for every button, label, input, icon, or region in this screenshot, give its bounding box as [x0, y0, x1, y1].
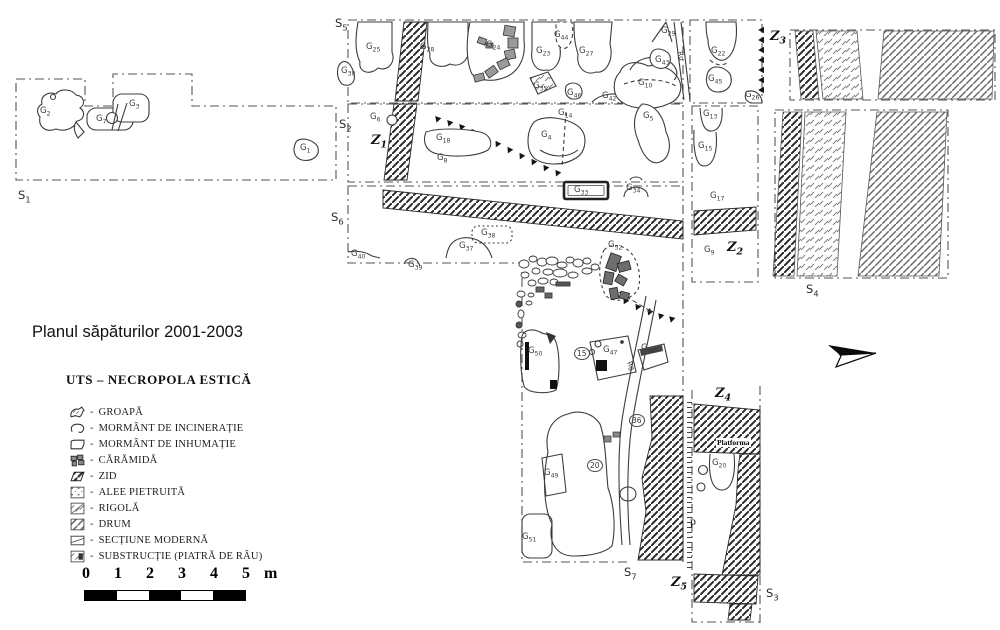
s3-bottom-tongue — [728, 604, 752, 620]
section-east-strip-outline — [692, 106, 758, 282]
legend-separator: - — [90, 551, 94, 562]
legend-separator: - — [90, 471, 94, 482]
caramida-icon — [70, 454, 85, 467]
wall-z1-upper — [395, 22, 427, 101]
legend-item-label: SUBSTRUCȚIE (PIATRĂ DE RÂU) — [99, 551, 263, 562]
graves-s2 — [387, 108, 722, 197]
substructie-band-s4 — [773, 112, 802, 276]
scale-segment — [213, 591, 245, 600]
drum-icon — [70, 518, 85, 531]
rigola-band-s4 — [797, 112, 846, 276]
legend-item-rigola: - RIGOLĂ — [70, 501, 356, 517]
incineratie-icon — [70, 422, 85, 435]
scale-segment — [149, 591, 181, 600]
scale-segment — [85, 591, 117, 600]
legend-item-label: DRUM — [99, 519, 131, 530]
s3-bottom-band — [694, 574, 758, 604]
groapa-icon — [70, 406, 85, 419]
legend-item-zid: - ZID — [70, 468, 356, 484]
sectiune-icon — [70, 534, 85, 547]
legend-item-label: MORMÂNT DE INHUMAȚIE — [99, 439, 236, 450]
legend-item-incineratie: - MORMÂNT DE INCINERAȚIE — [70, 420, 356, 436]
inhumatie-icon — [70, 438, 85, 451]
scale-segment — [117, 591, 149, 600]
legend-rows: - GROAPĂ - MORMÂNT DE INCINERAȚIE - MORM… — [70, 404, 356, 565]
rigola-band-north — [816, 31, 863, 99]
legend-item-alee: - ALEE PIETRUITĂ — [70, 484, 356, 500]
scale-tick-3: 3 — [166, 565, 198, 585]
scale-segment — [181, 591, 213, 600]
legend-separator: - — [90, 503, 94, 514]
legend-separator: - — [90, 487, 94, 498]
legend-item-sectiune: - SECȚIUNE MODERNĂ — [70, 533, 356, 549]
legend-item-groapa: - GROAPĂ — [70, 404, 356, 420]
paved-alley-stones — [516, 256, 599, 347]
legend-item-caramida: - CĂRĂMIDĂ — [70, 452, 356, 468]
legend-title: UTS – NECROPOLA ESTICĂ — [66, 372, 356, 388]
g52-bricks — [603, 253, 631, 300]
section-s6-s7-outline — [348, 186, 683, 562]
legend-item-substructie: - SUBSTRUCȚIE (PIATRĂ DE RÂU) — [70, 549, 356, 565]
legend-item-label: RIGOLĂ — [99, 503, 140, 514]
scale-tick-5: 5 — [230, 565, 262, 585]
scale-tick-4: 4 — [198, 565, 230, 585]
scale-tick-2: 2 — [134, 565, 166, 585]
wall-s6-long — [383, 190, 683, 239]
wall-z2-band — [694, 207, 756, 235]
drum-band-s4 — [858, 112, 947, 276]
legend-item-label: ZID — [99, 471, 117, 482]
graves-s1 — [38, 90, 319, 160]
scale-bar-ticks: 012345m — [70, 565, 300, 585]
rigola-icon — [70, 502, 85, 515]
plan-title: Planul săpăturilor 2001-2003 — [32, 323, 243, 342]
north-arrow-icon — [828, 345, 876, 367]
legend-item-label: ALEE PIETRUITĂ — [99, 487, 186, 498]
substructie-icon — [70, 550, 85, 563]
legend-separator: - — [90, 535, 94, 546]
alee-icon — [70, 486, 85, 499]
legend-separator: - — [90, 407, 94, 418]
legend-item-label: SECȚIUNE MODERNĂ — [99, 535, 209, 546]
legend-item-label: GROAPĂ — [99, 407, 143, 418]
scale-tick-0: 0 — [70, 565, 102, 585]
scale-bar-strip — [84, 590, 246, 601]
baulk-ticks-strip — [687, 398, 692, 572]
scale-bar: 012345m — [70, 565, 300, 596]
legend-separator: - — [90, 519, 94, 530]
legend-item-inhumatie: - MORMÂNT DE INHUMAȚIE — [70, 436, 356, 452]
legend-item-drum: - DRUM — [70, 517, 356, 533]
legend-separator: - — [90, 439, 94, 450]
scale-tick-1: 1 — [102, 565, 134, 585]
legend-separator: - — [90, 455, 94, 466]
platforma-band — [694, 404, 760, 454]
scale-unit: m — [264, 565, 277, 585]
legend-item-label: CĂRĂMIDĂ — [99, 455, 158, 466]
legend: UTS – NECROPOLA ESTICĂ - GROAPĂ - MORMÂN… — [66, 372, 356, 565]
legend-separator: - — [90, 423, 94, 434]
s3-east-column — [722, 454, 760, 575]
substructie-band-north — [795, 31, 819, 99]
g33-tomb — [564, 182, 608, 199]
excavation-plan-page: S1S2S3S4S5S6S7Z1Z2Z3Z4Z5G1G2G3G7G30G25G2… — [0, 0, 1000, 630]
legend-item-label: MORMÂNT DE INCINERAȚIE — [99, 423, 244, 434]
zid-icon — [70, 470, 85, 483]
wall-z4-band — [638, 396, 683, 560]
drum-band-north — [878, 31, 994, 99]
